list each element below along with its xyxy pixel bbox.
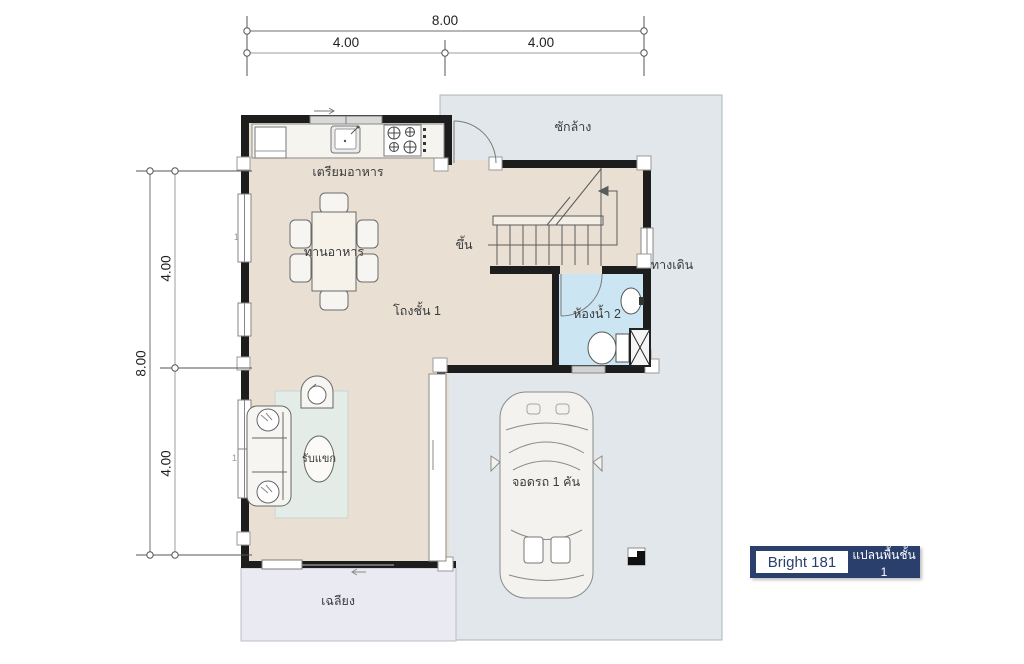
kitchen-counter bbox=[252, 124, 444, 158]
porch-area bbox=[241, 568, 456, 641]
dim-top-seg1: 4.00 bbox=[316, 35, 376, 50]
coffee-table bbox=[304, 436, 334, 482]
dining-chair bbox=[357, 254, 378, 282]
bathroom-door-opening bbox=[560, 266, 602, 274]
dining-chair bbox=[290, 254, 311, 282]
window-tag-1: 1 bbox=[234, 232, 239, 242]
dim-top-seg2: 4.00 bbox=[511, 35, 571, 50]
dining-chair bbox=[290, 220, 311, 248]
toilet bbox=[588, 332, 629, 364]
title-block: Bright 181 แปลนพื้นชั้น 1 bbox=[750, 546, 920, 578]
kitchen-sink bbox=[331, 126, 360, 154]
garage-vent-window bbox=[572, 366, 605, 373]
armchair bbox=[301, 376, 333, 408]
kitchen-window-arrow bbox=[314, 108, 334, 114]
dining-chair bbox=[320, 193, 348, 213]
dining-chair bbox=[320, 290, 348, 310]
dim-left-seg1: 4.00 bbox=[159, 247, 174, 291]
model-name: Bright 181 bbox=[768, 554, 836, 571]
dimension-lines-left bbox=[136, 168, 252, 558]
sofa bbox=[247, 406, 291, 506]
floorplan-canvas: 8.00 4.00 4.00 8.00 4.00 4.00 เตรียมอาหา… bbox=[0, 0, 1024, 664]
dim-left-overall: 8.00 bbox=[134, 342, 149, 386]
dining-chair bbox=[357, 220, 378, 248]
plan-caption: แปลนพื้นชั้น 1 bbox=[848, 546, 920, 579]
model-name-box: Bright 181 bbox=[756, 551, 848, 573]
dim-top-overall: 8.00 bbox=[415, 13, 475, 28]
refrigerator bbox=[255, 127, 286, 158]
pipe-shaft bbox=[630, 329, 650, 366]
dining-table bbox=[312, 212, 356, 291]
stove bbox=[384, 125, 426, 156]
car bbox=[491, 392, 602, 598]
dim-left-seg2: 4.00 bbox=[159, 442, 174, 486]
living-sliding-door bbox=[429, 374, 446, 561]
window-tag-2: 1 bbox=[232, 453, 237, 463]
garage-column bbox=[628, 548, 645, 565]
